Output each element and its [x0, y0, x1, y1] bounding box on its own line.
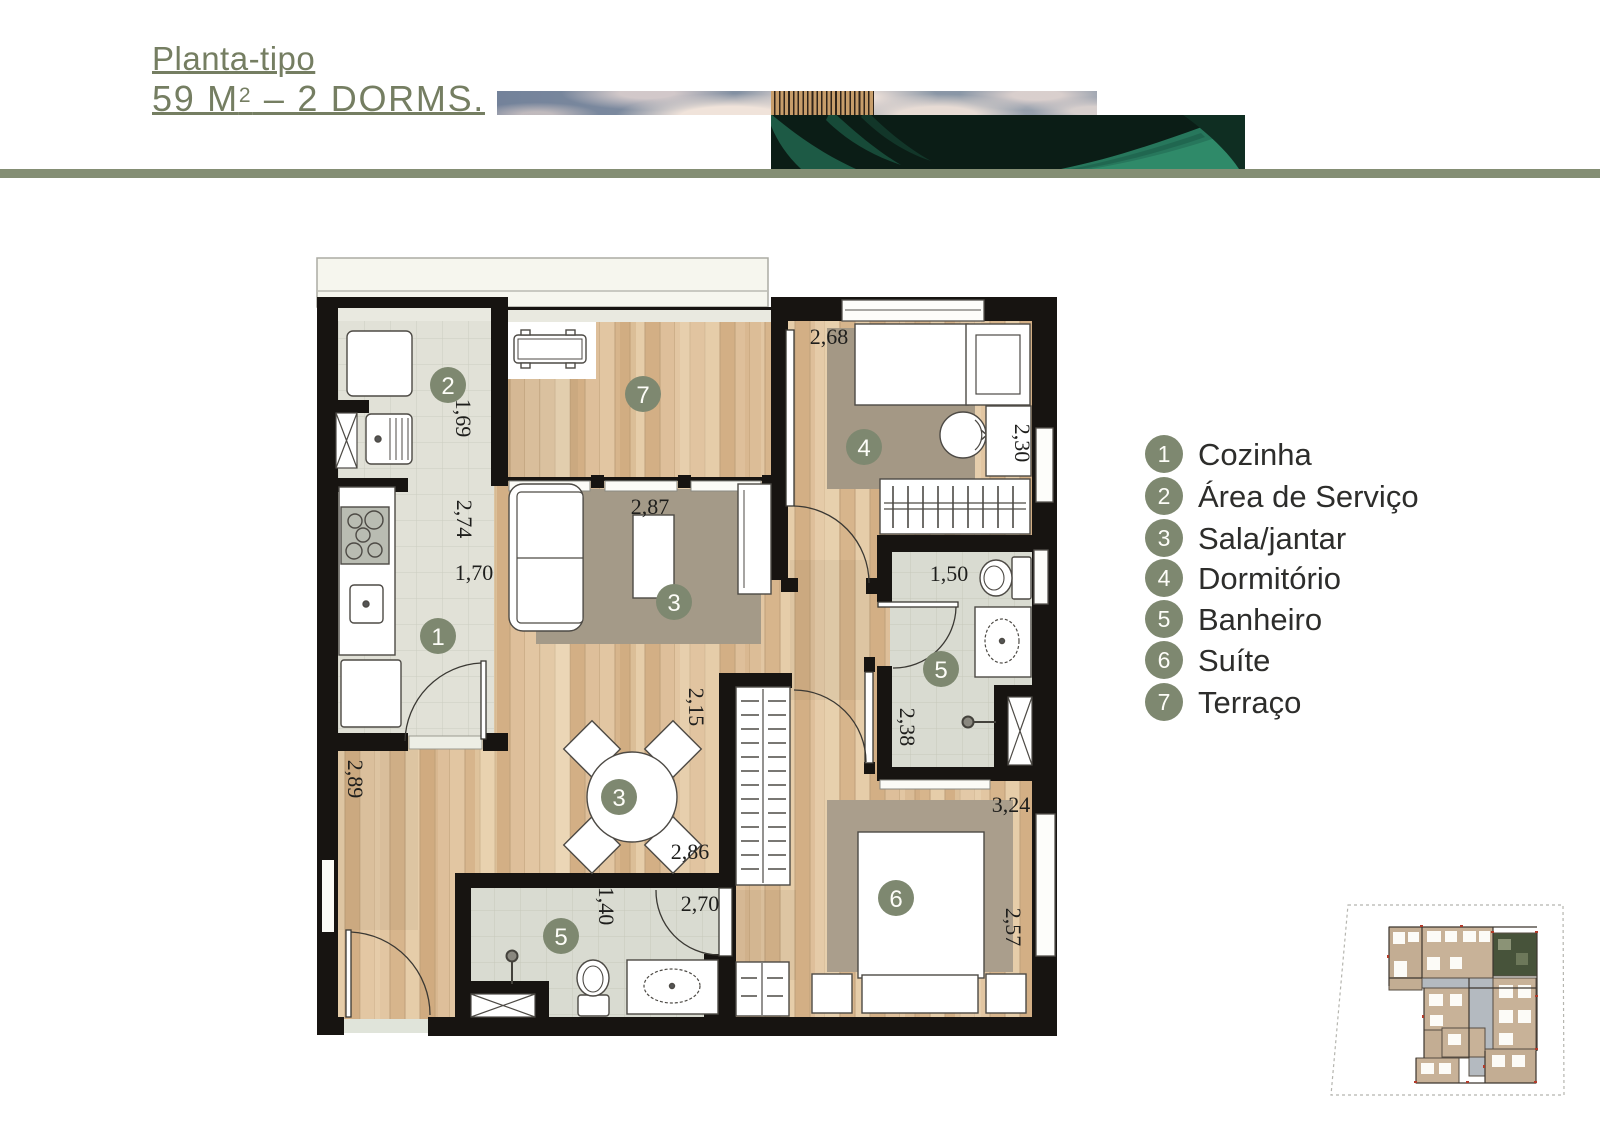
svg-text:1,70: 1,70 [455, 560, 494, 585]
svg-text:2,70: 2,70 [681, 891, 720, 916]
svg-text:3: 3 [667, 590, 680, 617]
svg-text:6: 6 [889, 886, 902, 913]
svg-text:2,57: 2,57 [1001, 908, 1026, 947]
svg-text:5: 5 [934, 657, 947, 684]
svg-text:2,68: 2,68 [810, 324, 849, 349]
svg-text:1: 1 [431, 624, 444, 651]
svg-text:2,87: 2,87 [631, 494, 670, 519]
svg-text:2,15: 2,15 [684, 688, 709, 727]
svg-text:1,69: 1,69 [451, 399, 476, 438]
svg-text:5: 5 [554, 924, 567, 951]
svg-text:3: 3 [612, 785, 625, 812]
svg-text:2: 2 [441, 373, 454, 400]
svg-text:2,30: 2,30 [1010, 424, 1035, 463]
svg-text:1,40: 1,40 [594, 887, 619, 926]
svg-text:2,89: 2,89 [343, 760, 368, 799]
svg-text:2,38: 2,38 [895, 708, 920, 747]
svg-text:1,50: 1,50 [930, 561, 969, 586]
svg-text:3,24: 3,24 [992, 792, 1031, 817]
svg-text:7: 7 [636, 382, 649, 409]
svg-text:4: 4 [857, 435, 870, 462]
svg-text:2,86: 2,86 [671, 839, 710, 864]
svg-text:2,74: 2,74 [452, 500, 477, 539]
